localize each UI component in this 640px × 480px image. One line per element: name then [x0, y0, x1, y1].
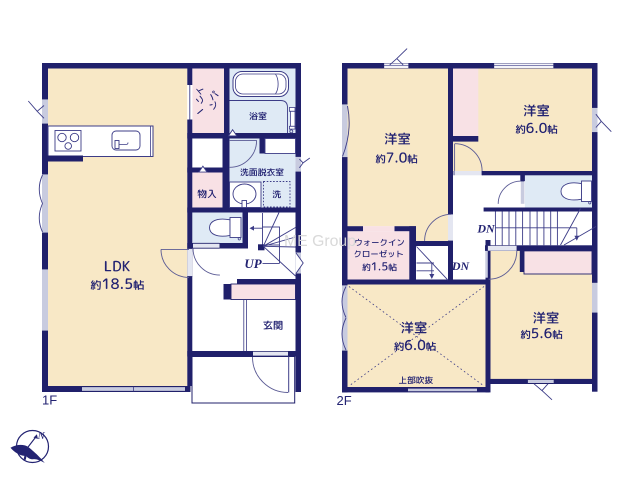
svg-text:UP: UP [244, 256, 262, 271]
svg-text:1F: 1F [42, 392, 57, 407]
svg-text:ME Group: ME Group [284, 233, 356, 250]
svg-text:DN: DN [451, 259, 471, 273]
svg-text:DN: DN [476, 222, 496, 236]
svg-text:2F: 2F [337, 393, 352, 408]
svg-text:N: N [37, 431, 46, 442]
